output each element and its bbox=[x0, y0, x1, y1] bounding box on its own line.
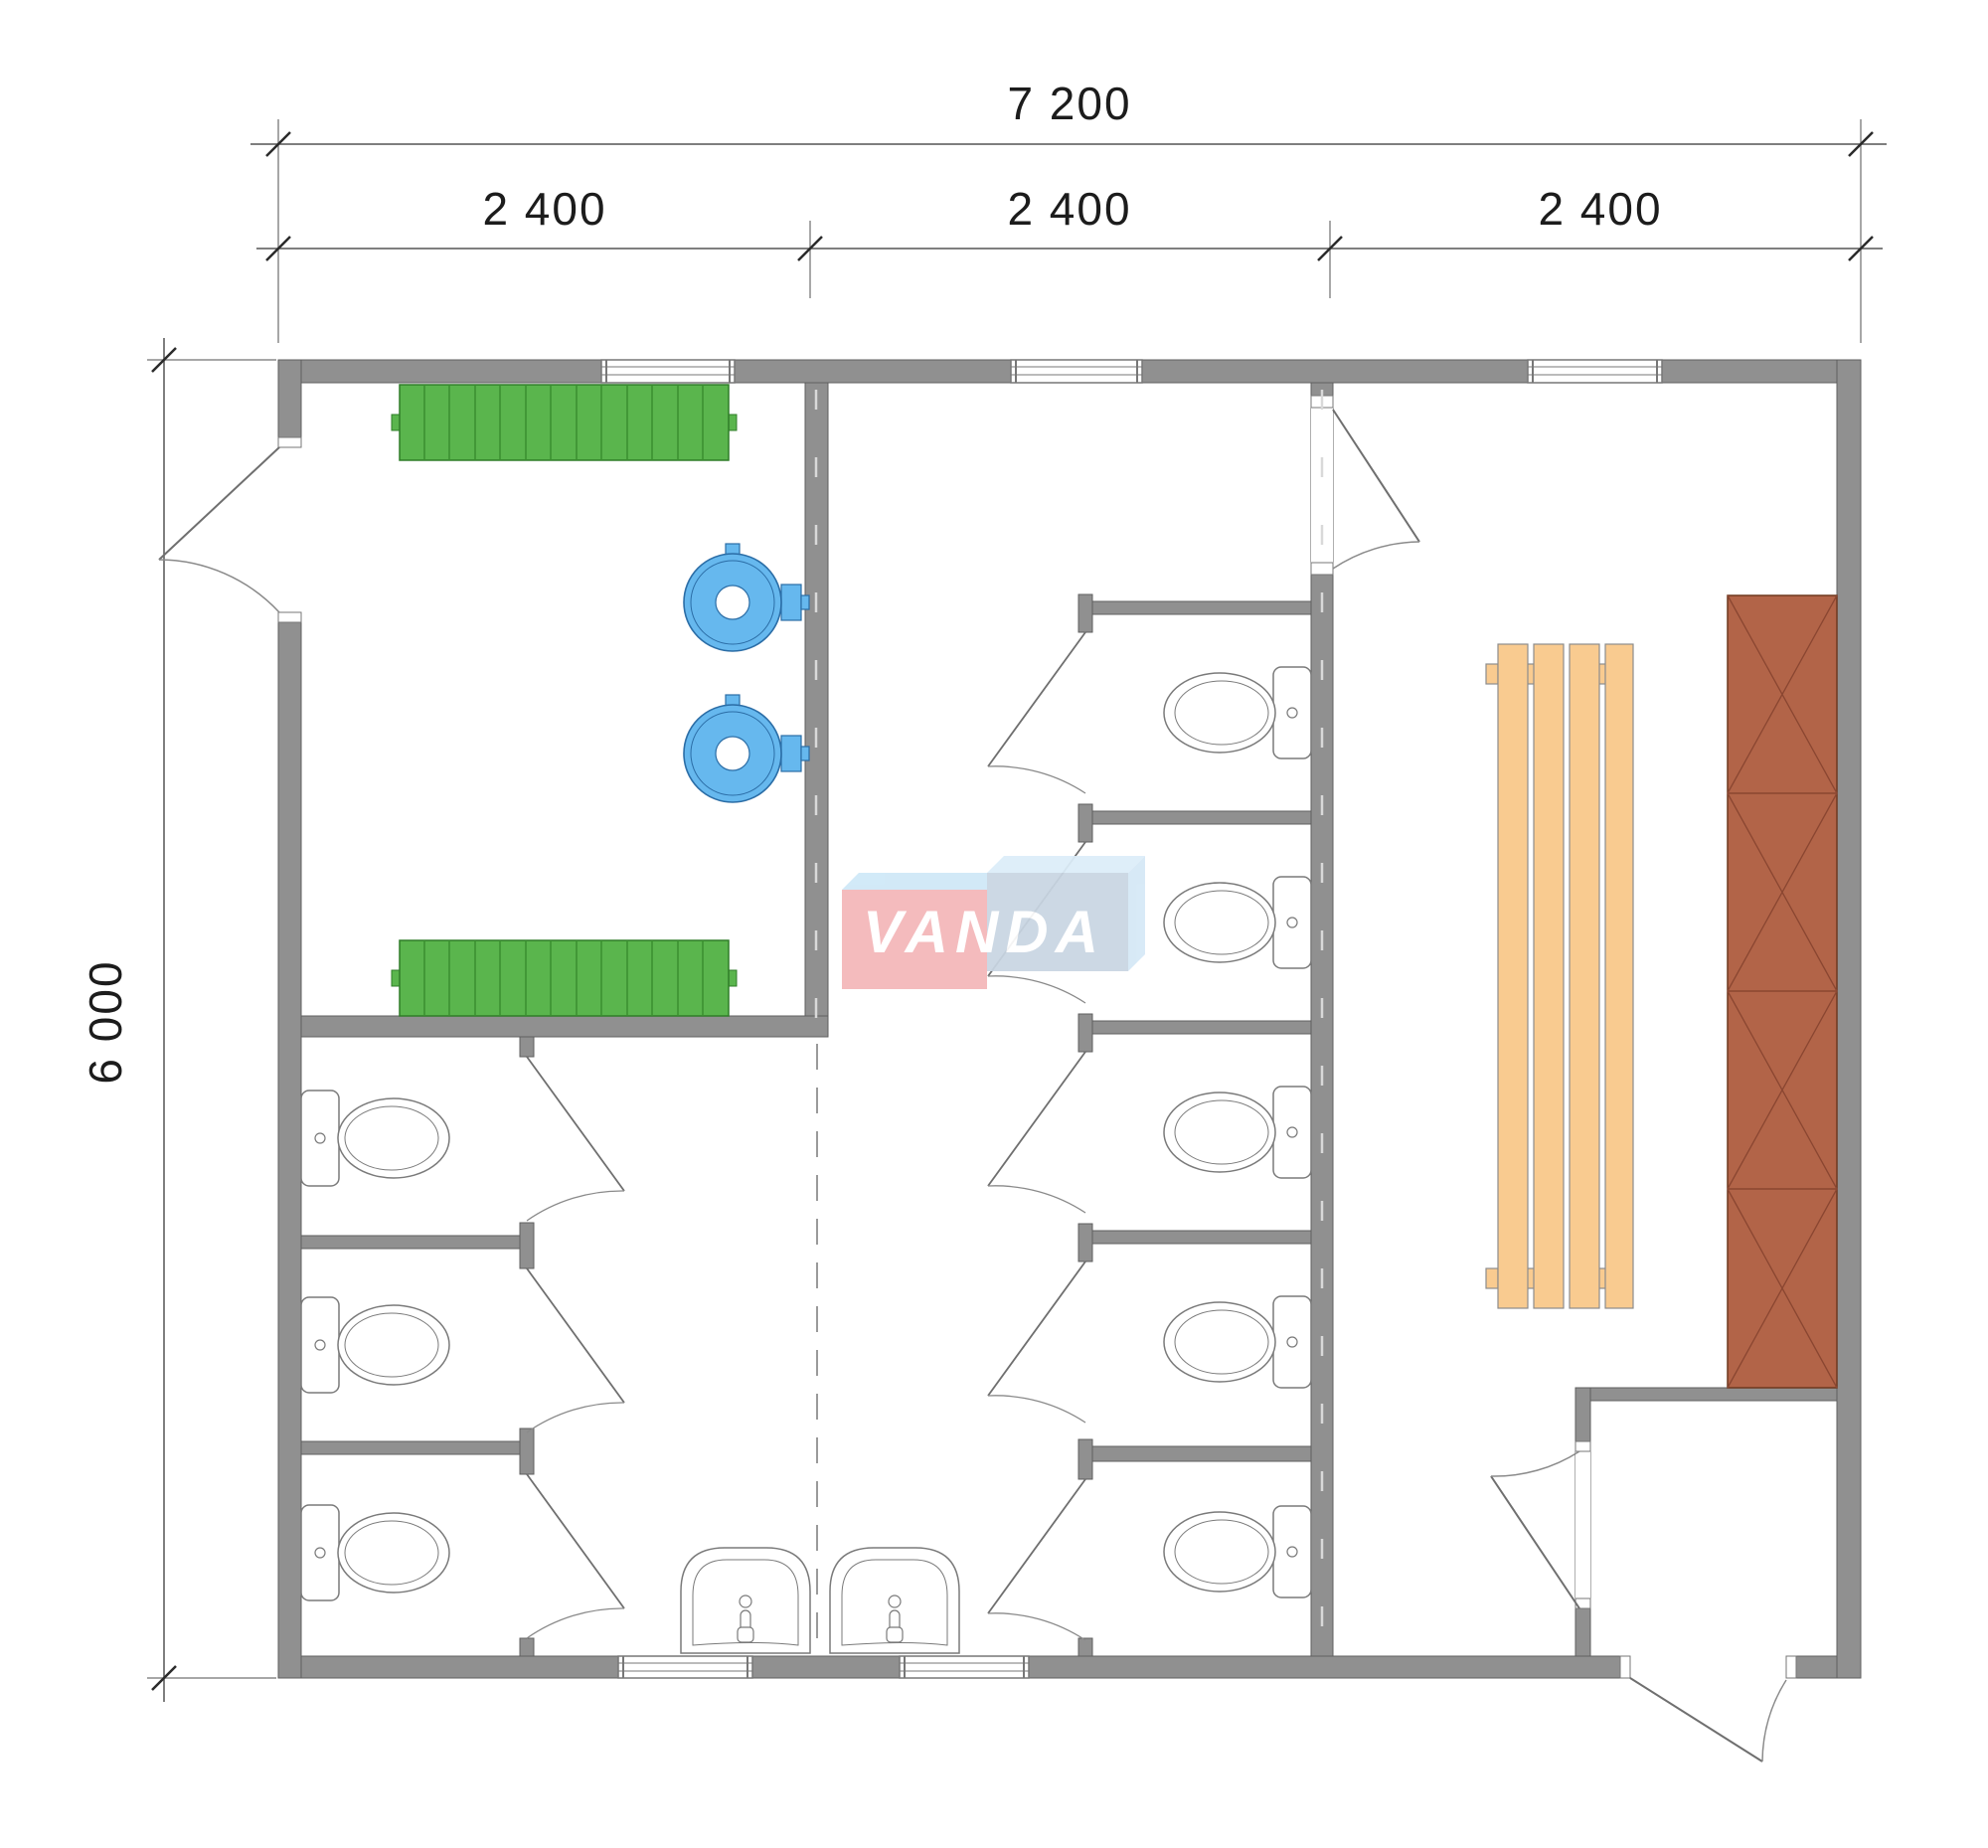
wall-left-room-bottom bbox=[301, 1016, 828, 1037]
watermark-red-top-face bbox=[842, 873, 1004, 890]
stall-door bbox=[988, 1052, 1085, 1213]
dimension-label-total-width: 7 200 bbox=[1007, 78, 1131, 129]
stall-partition bbox=[1092, 811, 1311, 824]
stall-partition bbox=[1092, 1231, 1311, 1244]
stall-partition bbox=[1092, 1446, 1311, 1461]
window-icon bbox=[618, 1656, 752, 1678]
bench-plank bbox=[1570, 644, 1599, 1308]
watermark-blue-top-face bbox=[987, 856, 1145, 873]
stall-partition bbox=[301, 1236, 520, 1249]
dimension-label-total-height: 6 000 bbox=[80, 959, 131, 1084]
stall-door bbox=[527, 1474, 624, 1638]
radiators bbox=[392, 385, 737, 1016]
toilet-icon bbox=[301, 1297, 449, 1393]
bench-leg bbox=[1486, 1268, 1498, 1288]
stall-front-stub bbox=[520, 1428, 534, 1474]
door-exterior-left bbox=[159, 447, 279, 612]
stall-door bbox=[527, 1057, 624, 1221]
stall-front-stub bbox=[1078, 1638, 1092, 1656]
watermark-blue-side-face bbox=[1128, 856, 1145, 971]
stall-partition bbox=[1092, 1021, 1311, 1034]
stall-front-stub bbox=[1078, 1014, 1092, 1052]
wall-vestibule-top bbox=[1575, 1388, 1837, 1401]
toilet-icon bbox=[1164, 1506, 1311, 1597]
stall-front-stub bbox=[520, 1638, 534, 1656]
door-vestibule bbox=[1491, 1451, 1579, 1608]
water-heaters bbox=[684, 544, 809, 802]
stall-front-stub bbox=[1078, 804, 1092, 842]
floor-plan-canvas: 7 200 2 400 2 400 2 400 6 000 bbox=[0, 0, 1988, 1848]
toilet-icon bbox=[1164, 1296, 1311, 1388]
dimension-label-segment-1: 2 400 bbox=[482, 183, 606, 235]
water-heater-icon bbox=[684, 695, 809, 802]
floor-plan-drawing: 7 200 2 400 2 400 2 400 6 000 bbox=[0, 0, 1988, 1848]
sinks bbox=[681, 1548, 959, 1653]
opening-exterior-left bbox=[277, 437, 302, 622]
locker-icon bbox=[1728, 595, 1837, 1388]
toilet-icon bbox=[301, 1505, 449, 1600]
wall-right bbox=[1837, 360, 1861, 1678]
door-exterior-bottom bbox=[1630, 1678, 1786, 1762]
radiator-icon bbox=[392, 385, 737, 460]
stall-door bbox=[988, 1261, 1085, 1423]
stall-door bbox=[988, 632, 1085, 793]
locker-cabinet bbox=[1728, 595, 1837, 1388]
sink-icon bbox=[681, 1548, 810, 1653]
stall-front-stub bbox=[1078, 594, 1092, 632]
water-heater-icon bbox=[684, 544, 809, 651]
stall-partition bbox=[1092, 601, 1311, 614]
opening-vestibule bbox=[1575, 1451, 1590, 1608]
bench-plank bbox=[1534, 644, 1564, 1308]
toilet-icon bbox=[301, 1091, 449, 1186]
window-icon bbox=[900, 1656, 1029, 1678]
opening-exterior-bottom bbox=[1630, 1655, 1786, 1679]
dimension-label-segment-2: 2 400 bbox=[1007, 183, 1131, 235]
opening-middle-divider bbox=[1311, 396, 1333, 575]
toilet-icon bbox=[1164, 1087, 1311, 1178]
watermark-text: VANDA bbox=[863, 899, 1105, 965]
bench-plank bbox=[1498, 644, 1528, 1308]
window-icon bbox=[1528, 360, 1662, 383]
stall-front-stub bbox=[520, 1223, 534, 1268]
stall-front-stub bbox=[1078, 1439, 1092, 1479]
stall-partition bbox=[301, 1441, 520, 1454]
bench bbox=[1486, 644, 1633, 1308]
toilet-icon bbox=[1164, 877, 1311, 968]
radiator-icon bbox=[392, 940, 737, 1016]
stall-front-stub bbox=[1078, 1224, 1092, 1261]
stall-front-stub bbox=[520, 1037, 534, 1057]
window-icon bbox=[601, 360, 735, 383]
stall-door bbox=[988, 1479, 1085, 1640]
toilet-icon bbox=[1164, 667, 1311, 758]
bench-leg bbox=[1486, 664, 1498, 684]
dimension-label-segment-3: 2 400 bbox=[1538, 183, 1662, 235]
sink-icon bbox=[830, 1548, 959, 1653]
bench-plank bbox=[1605, 644, 1633, 1308]
window-icon bbox=[1011, 360, 1142, 383]
door-right-room bbox=[1333, 410, 1419, 569]
stall-door bbox=[527, 1268, 624, 1432]
watermark: VANDA bbox=[842, 856, 1145, 989]
bench-icon bbox=[1486, 644, 1633, 1308]
